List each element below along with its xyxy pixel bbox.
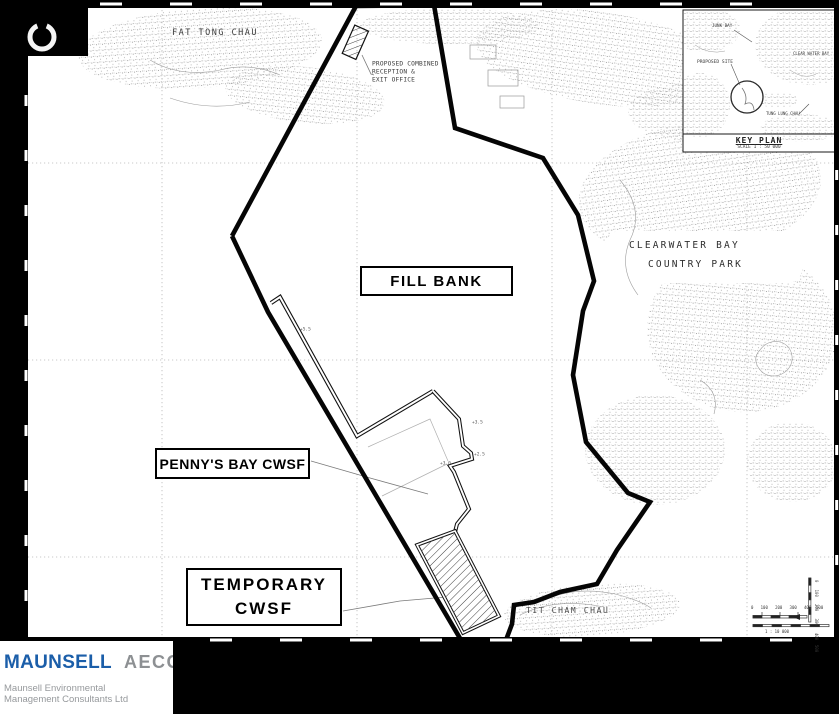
label-clearwater-bay: CLEARWATER BAY <box>629 240 740 251</box>
pennys-bay-cwsf-label: PENNY'S BAY CWSF <box>160 456 306 472</box>
map-drawing <box>0 0 839 714</box>
pennys-bay-cwsf-label-box: PENNY'S BAY CWSF <box>155 448 310 479</box>
temporary-cwsf-line2: CWSF <box>235 597 293 621</box>
footer-subtitle: Maunsell Environmental Management Consul… <box>4 683 173 705</box>
label-country-park: COUNTRY PARK <box>648 259 743 270</box>
footer-logo-card: MAUNSELL AECOM Maunsell Environmental Ma… <box>0 641 173 714</box>
spot-level: +3.5 <box>472 420 483 425</box>
footer-subtitle-line1: Maunsell Environmental <box>4 683 173 694</box>
scanned-drawing-canvas: { "map": { "place_labels": { "fat_tong_c… <box>0 0 839 714</box>
key-plan-inset <box>670 5 839 152</box>
footer-brand-primary: MAUNSELL <box>4 652 112 674</box>
temporary-cwsf-label-box: TEMPORARY CWSF <box>186 568 342 626</box>
spot-level: +3.0 <box>440 461 451 466</box>
label-reception-line3: EXIT OFFICE <box>372 77 415 83</box>
spot-level: +2.5 <box>474 452 485 457</box>
keyplan-tung-lung-chau: TUNG LUNG CHAU <box>766 112 800 116</box>
spot-level: +5.5 <box>300 327 311 332</box>
label-reception-line2: RECEPTION & <box>372 69 415 75</box>
keyplan-junk-bay: JUNK BAY <box>712 24 732 28</box>
keyplan-clear-water-bay: CLEAR WATER BAY <box>793 52 829 56</box>
scalebar-numbers-vertical: 0 100 200 300 400 500 <box>814 580 818 652</box>
brand-row: MAUNSELL AECOM <box>4 650 173 675</box>
footer-brand-secondary: AECOM <box>124 652 173 673</box>
keyplan-proposed-site: PROPOSED SITE <box>697 60 733 65</box>
footer-subtitle-line2: Management Consultants Ltd <box>4 694 173 705</box>
label-tit-cham-chau: TIT CHAM CHAU <box>526 606 609 615</box>
temporary-cwsf-line1: TEMPORARY <box>201 573 327 597</box>
label-clearing <box>606 231 802 283</box>
label-reception-line1: PROPOSED COMBINED <box>372 61 439 67</box>
scalebar-numbers: 0 100 200 300 400 500 <box>751 606 823 610</box>
scalebar-caption: 1 : 10 000 <box>765 630 789 634</box>
proposed-site-circle <box>731 81 763 113</box>
fill-bank-label: FILL BANK <box>390 273 482 290</box>
label-fat-tong-chau: FAT TONG CHAU <box>172 28 258 38</box>
keyplan-scale: SCALE 1 : 50 000 <box>725 145 793 150</box>
fill-bank-label-box: FILL BANK <box>360 266 513 296</box>
